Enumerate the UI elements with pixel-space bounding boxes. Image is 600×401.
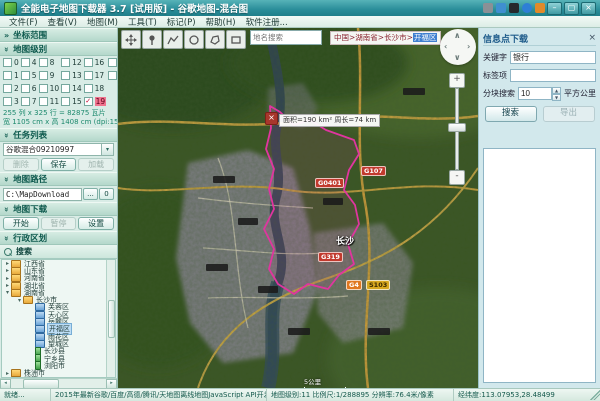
level-checkbox-9[interactable]: 9 bbox=[37, 69, 60, 82]
level-checkbox-1[interactable]: 1 bbox=[1, 69, 19, 82]
menu-register[interactable]: 软件注册... bbox=[241, 16, 293, 28]
folder-icon bbox=[23, 296, 33, 304]
section-admin-division[interactable]: »行政区划 bbox=[0, 231, 117, 245]
road-shield: G107 bbox=[361, 166, 386, 176]
section-coord-range[interactable]: »坐标范围 bbox=[0, 28, 117, 42]
level-checkbox-11[interactable]: 11 bbox=[37, 95, 60, 108]
menu-mark[interactable]: 标记(P) bbox=[162, 16, 201, 28]
close-button[interactable]: × bbox=[581, 2, 596, 15]
level-checkbox-6[interactable]: 6 bbox=[19, 82, 37, 95]
section-map-level[interactable]: »地图级别 bbox=[0, 42, 117, 56]
level-checkbox-14[interactable]: 14 bbox=[59, 82, 82, 95]
spinner-buttons[interactable]: ▲▼ bbox=[552, 87, 561, 100]
level-checkbox-7[interactable]: 7 bbox=[19, 95, 37, 108]
map-path-input[interactable] bbox=[3, 188, 82, 201]
expand-icon[interactable]: ▸ bbox=[4, 370, 11, 377]
level-checkbox-8[interactable]: 8 bbox=[37, 56, 60, 69]
pan-right-icon[interactable]: › bbox=[467, 42, 470, 51]
level-checkbox-5[interactable]: 5 bbox=[19, 69, 37, 82]
map-toolbar bbox=[121, 30, 322, 49]
status-coordinates: 经纬度:113.07953,28.48499 bbox=[454, 389, 590, 401]
pan-tool-button[interactable] bbox=[121, 30, 141, 49]
task-combobox[interactable]: 谷歌混合09210997 bbox=[3, 143, 102, 156]
poi-panel-title: 信息点下载 bbox=[483, 32, 588, 45]
poi-download-panel: 信息点下载 × 关键字 标签项 分块搜索 ▲▼ 平方公里 搜索 导出 bbox=[478, 28, 600, 388]
level-checkbox-0[interactable]: 0 bbox=[1, 56, 19, 69]
maximize-button[interactable]: ▢ bbox=[564, 2, 579, 15]
app-window: 全能电子地图下载器 3.7 [试用版] - 谷歌地图-混合图 – ▢ × 文件(… bbox=[0, 0, 600, 401]
print-size-text: 宽 1105 cm x 高 1408 cm (dpi:150) bbox=[3, 118, 114, 127]
poi-export-button[interactable]: 导出 bbox=[543, 106, 595, 122]
level-checkbox-19[interactable]: ✓19 bbox=[82, 95, 107, 108]
level-checkbox-4[interactable]: 4 bbox=[19, 56, 37, 69]
breadcrumb[interactable]: 中国>湖南省>长沙市>开福区 bbox=[330, 31, 441, 45]
admin-tree: ▸江西省▸山东省▸河南省▸湖北省▾湖南省▾长沙市芙蓉区天心区岳麓区开福区雨花区望… bbox=[2, 260, 107, 377]
place-search-input[interactable] bbox=[250, 30, 322, 45]
map-scale-bar: 5公里 bbox=[304, 376, 346, 388]
pause-download-button[interactable]: 暂停 bbox=[41, 217, 77, 230]
poi-result-list[interactable] bbox=[483, 148, 596, 383]
poi-close-icon[interactable]: × bbox=[588, 33, 596, 43]
app-icon bbox=[4, 2, 17, 15]
title-bar: 全能电子地图下载器 3.7 [试用版] - 谷歌地图-混合图 – ▢ × bbox=[0, 0, 600, 16]
minimize-button[interactable]: – bbox=[547, 2, 562, 15]
block-unit-label: 平方公里 bbox=[564, 88, 596, 99]
folder-icon bbox=[11, 376, 21, 377]
zoom-slider-handle[interactable] bbox=[448, 123, 466, 132]
section-map-path[interactable]: »地图路径 bbox=[0, 172, 117, 186]
globe-icon[interactable] bbox=[522, 3, 532, 13]
level-checkbox-3[interactable]: 3 bbox=[1, 95, 19, 108]
status-promo: 2015年最新谷歌/百度/高德/腾讯/天地图离线地图JavaScript API… bbox=[51, 389, 267, 401]
move-icon bbox=[125, 34, 137, 46]
chevron-down-icon: » bbox=[2, 46, 11, 51]
zoom-out-button[interactable]: - bbox=[449, 170, 465, 185]
browse-path-button[interactable]: ... bbox=[83, 188, 98, 200]
city-label: 长沙 bbox=[336, 234, 354, 247]
block-search-label: 分块搜索 bbox=[483, 88, 515, 99]
menu-bar: 文件(F) 查看(V) 地图(M) 工具(T) 标记(P) 帮助(H) 软件注册… bbox=[0, 16, 600, 28]
pin-icon bbox=[146, 34, 158, 46]
poi-search-button[interactable]: 搜索 bbox=[485, 106, 537, 122]
road-shield: S103 bbox=[366, 280, 390, 290]
region-tree-container: ▸江西省▸山东省▸河南省▸湖北省▾湖南省▾长沙市芙蓉区天心区岳麓区开福区雨花区望… bbox=[1, 259, 116, 378]
menu-help[interactable]: 帮助(H) bbox=[201, 16, 241, 28]
collapse-icon[interactable]: ▾ bbox=[4, 289, 11, 296]
level-checkbox-17[interactable]: 17 bbox=[82, 69, 107, 82]
level-checkbox-10[interactable]: 10 bbox=[37, 82, 60, 95]
level-checkbox-2[interactable]: 2 bbox=[1, 82, 19, 95]
tag-label: 标签项 bbox=[483, 70, 507, 81]
block-size-input[interactable] bbox=[518, 87, 552, 100]
level-checkbox-18[interactable]: 18 bbox=[82, 82, 107, 95]
polyline-icon bbox=[167, 34, 179, 46]
tools-icon[interactable] bbox=[483, 3, 493, 13]
tile-info: 255 列 x 325 行 = 82875 瓦片 宽 1105 cm x 高 1… bbox=[0, 108, 117, 128]
tree-horizontal-scrollbar[interactable]: ◂ ▸ bbox=[0, 378, 117, 388]
level-checkbox-12[interactable]: 12 bbox=[59, 56, 82, 69]
menu-map[interactable]: 地图(M) bbox=[82, 16, 123, 28]
measurement-label: 面积=190 km² 周长=74 km bbox=[279, 114, 380, 127]
pan-up-icon[interactable]: ∧ bbox=[454, 31, 461, 40]
keyword-input[interactable] bbox=[510, 51, 596, 64]
spin-up-icon: ▲ bbox=[552, 87, 561, 94]
resize-grip[interactable] bbox=[590, 390, 600, 400]
zoom-in-button[interactable]: + bbox=[449, 73, 465, 88]
circle-tool-button[interactable] bbox=[184, 30, 204, 49]
window-title: 全能电子地图下载器 3.7 [试用版] - 谷歌地图-混合图 bbox=[21, 1, 480, 15]
level-checkbox-20[interactable]: 20 bbox=[106, 56, 118, 69]
chevron-down-icon: » bbox=[2, 235, 11, 240]
left-sidebar: »坐标范围 »地图级别 0481216201591317212610141837… bbox=[0, 28, 118, 388]
expand-icon[interactable]: ▸ bbox=[4, 282, 11, 289]
marker-tool-button[interactable] bbox=[142, 30, 162, 49]
status-bar: 就绪... 2015年最新谷歌/百度/高德/腾讯/天地图离线地图JavaScri… bbox=[0, 388, 600, 401]
section-task-list[interactable]: »任务列表 bbox=[0, 128, 117, 142]
section-map-download[interactable]: »地图下载 bbox=[0, 202, 117, 216]
pan-control[interactable]: ∧ ∨ ‹ › bbox=[440, 29, 476, 65]
menu-file[interactable]: 文件(F) bbox=[4, 16, 43, 28]
polyline-tool-button[interactable] bbox=[163, 30, 183, 49]
tree-item[interactable]: ▸河南省 bbox=[2, 275, 107, 282]
scrollbar-thumb[interactable] bbox=[108, 300, 115, 338]
chevron-down-icon: » bbox=[2, 176, 11, 181]
rectangle-tool-button[interactable] bbox=[226, 30, 246, 49]
search-icon bbox=[4, 248, 12, 256]
level-checkbox-15[interactable]: 15 bbox=[59, 95, 82, 108]
rectangle-icon bbox=[230, 34, 242, 46]
level-checkbox-13[interactable]: 13 bbox=[59, 69, 82, 82]
tile-count-text: 255 列 x 325 行 = 82875 瓦片 bbox=[3, 109, 114, 118]
chevron-down-icon: » bbox=[2, 206, 11, 211]
circle-icon bbox=[188, 34, 200, 46]
save-task-button[interactable]: 保存 bbox=[41, 158, 77, 171]
combo-dropdown-icon[interactable]: ▾ bbox=[102, 143, 114, 156]
keyword-label: 关键字 bbox=[483, 52, 507, 63]
chevron-right-icon: » bbox=[4, 31, 9, 40]
status-ready: 就绪... bbox=[0, 389, 51, 401]
level-checkbox-16[interactable]: 16 bbox=[82, 56, 107, 69]
expand-icon[interactable]: ▸ bbox=[4, 260, 11, 267]
scroll-right-icon[interactable]: ▸ bbox=[106, 379, 117, 388]
breadcrumb-current: 开福区 bbox=[413, 33, 438, 42]
tag-input[interactable] bbox=[510, 69, 596, 82]
chevron-down-icon: » bbox=[2, 132, 11, 137]
road-shield: G319 bbox=[318, 252, 343, 262]
delete-task-button[interactable]: 删除 bbox=[3, 158, 39, 171]
pan-down-icon[interactable]: ∨ bbox=[454, 53, 461, 62]
download-settings-button[interactable]: 设置 bbox=[78, 217, 114, 230]
expand-icon[interactable]: ▸ bbox=[4, 275, 11, 282]
load-task-button[interactable]: 加载 bbox=[78, 158, 114, 171]
map-level-grid: 04812162015913172126101418371115✓19 bbox=[0, 56, 117, 108]
tree-item-label: 浏阳市 bbox=[43, 361, 66, 371]
tree-vertical-scrollbar[interactable] bbox=[106, 260, 115, 377]
region-search-bar[interactable]: 搜索 bbox=[0, 245, 117, 259]
polygon-icon bbox=[209, 34, 221, 46]
scrollbar-thumb[interactable] bbox=[23, 379, 59, 388]
status-map-info: 地图级别:11 比例尺:1/288895 分辨率:76.4米/像素 bbox=[267, 389, 454, 401]
tree-item-label: 湘潭市 bbox=[23, 375, 46, 377]
map-viewport[interactable]: G0401 G107 G319 G4 S103 长沙 5公里 中国>湖南省>长沙… bbox=[118, 28, 478, 388]
scroll-left-icon[interactable]: ◂ bbox=[0, 379, 11, 388]
messenger-icon[interactable] bbox=[496, 3, 506, 13]
road-shield: G0401 bbox=[315, 178, 344, 188]
qq-icon[interactable] bbox=[509, 3, 519, 13]
expand-icon[interactable]: ▸ bbox=[4, 267, 11, 274]
menu-tools[interactable]: 工具(T) bbox=[123, 16, 162, 28]
collapse-icon[interactable]: ▾ bbox=[16, 297, 23, 304]
archive-icon[interactable] bbox=[535, 3, 545, 13]
region-search-label: 搜索 bbox=[16, 246, 32, 257]
menu-view[interactable]: 查看(V) bbox=[43, 16, 82, 28]
satellite-imagery bbox=[118, 28, 478, 388]
spin-down-icon: ▼ bbox=[552, 94, 561, 101]
remove-selection-button[interactable]: × bbox=[265, 112, 278, 125]
polygon-tool-button[interactable] bbox=[205, 30, 225, 49]
pan-left-icon[interactable]: ‹ bbox=[444, 42, 447, 51]
road-shield: G4 bbox=[346, 280, 362, 290]
start-download-button[interactable]: 开始 bbox=[3, 217, 39, 230]
level-checkbox-21[interactable]: 21 bbox=[106, 69, 118, 82]
zero-button[interactable]: 0 bbox=[99, 188, 114, 200]
